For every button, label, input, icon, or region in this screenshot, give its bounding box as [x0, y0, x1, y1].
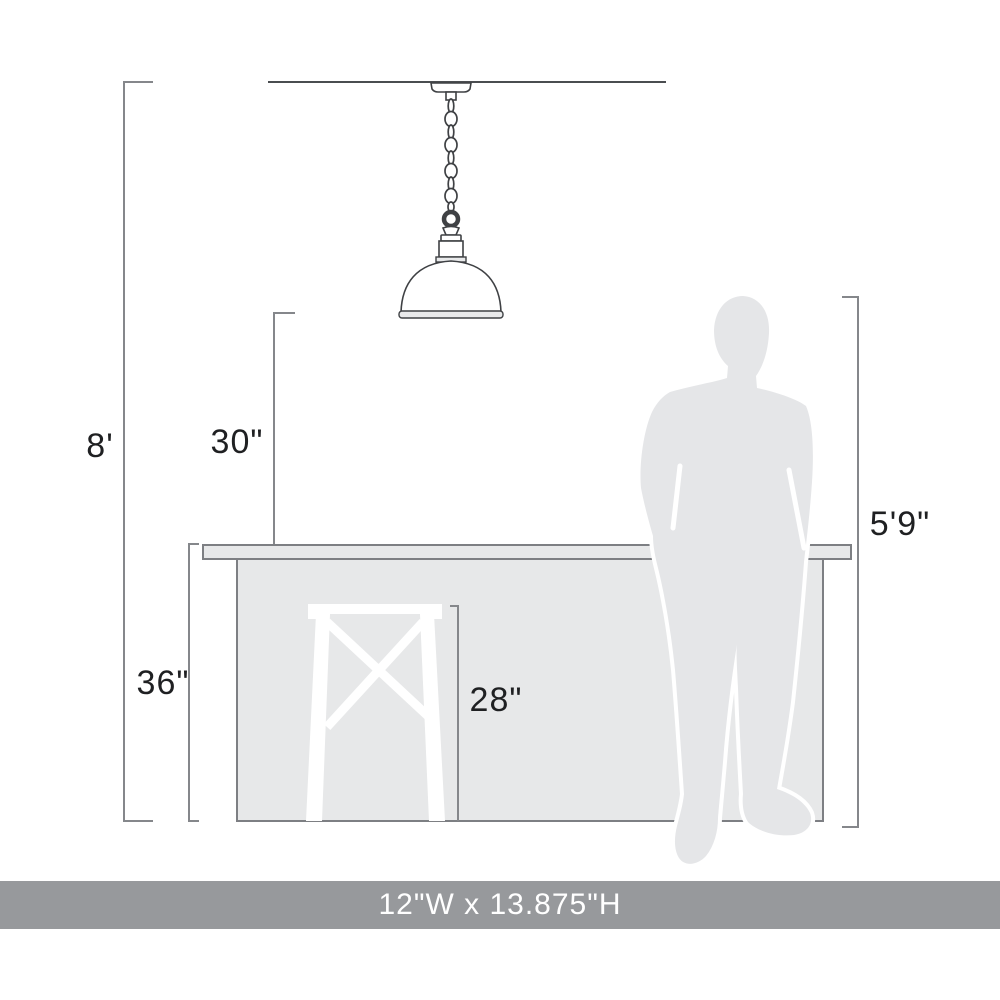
shade-neck — [439, 241, 463, 257]
pendant-light-fixture — [399, 83, 503, 318]
counter-height-label: 36" — [130, 664, 196, 703]
pendant-clearance-label: 30" — [204, 423, 270, 462]
shade-ring — [444, 212, 458, 226]
hanging-chain — [445, 99, 457, 212]
stool-height-label: 28" — [463, 681, 529, 720]
dome-shade — [401, 261, 501, 312]
person-height-label: 5'9" — [858, 505, 942, 544]
finial-collar — [441, 235, 461, 241]
stool-seat — [308, 604, 442, 614]
shade-rim — [399, 311, 503, 318]
fixture-size-banner: 12"W x 13.875"H — [0, 881, 1000, 929]
ceiling-height-label: 8' — [60, 427, 140, 466]
person-height-dimension-line — [842, 297, 858, 827]
fixture-size-text: 12"W x 13.875"H — [378, 888, 621, 922]
scale-diagram: 8' 30" 36" 28" 5'9" 12"W x 13.875"H — [0, 0, 1000, 1000]
finial — [443, 227, 459, 236]
pendant-clearance-dimension-line — [274, 313, 295, 544]
diagram-canvas — [0, 0, 1000, 1000]
ceiling-canopy — [431, 83, 471, 92]
